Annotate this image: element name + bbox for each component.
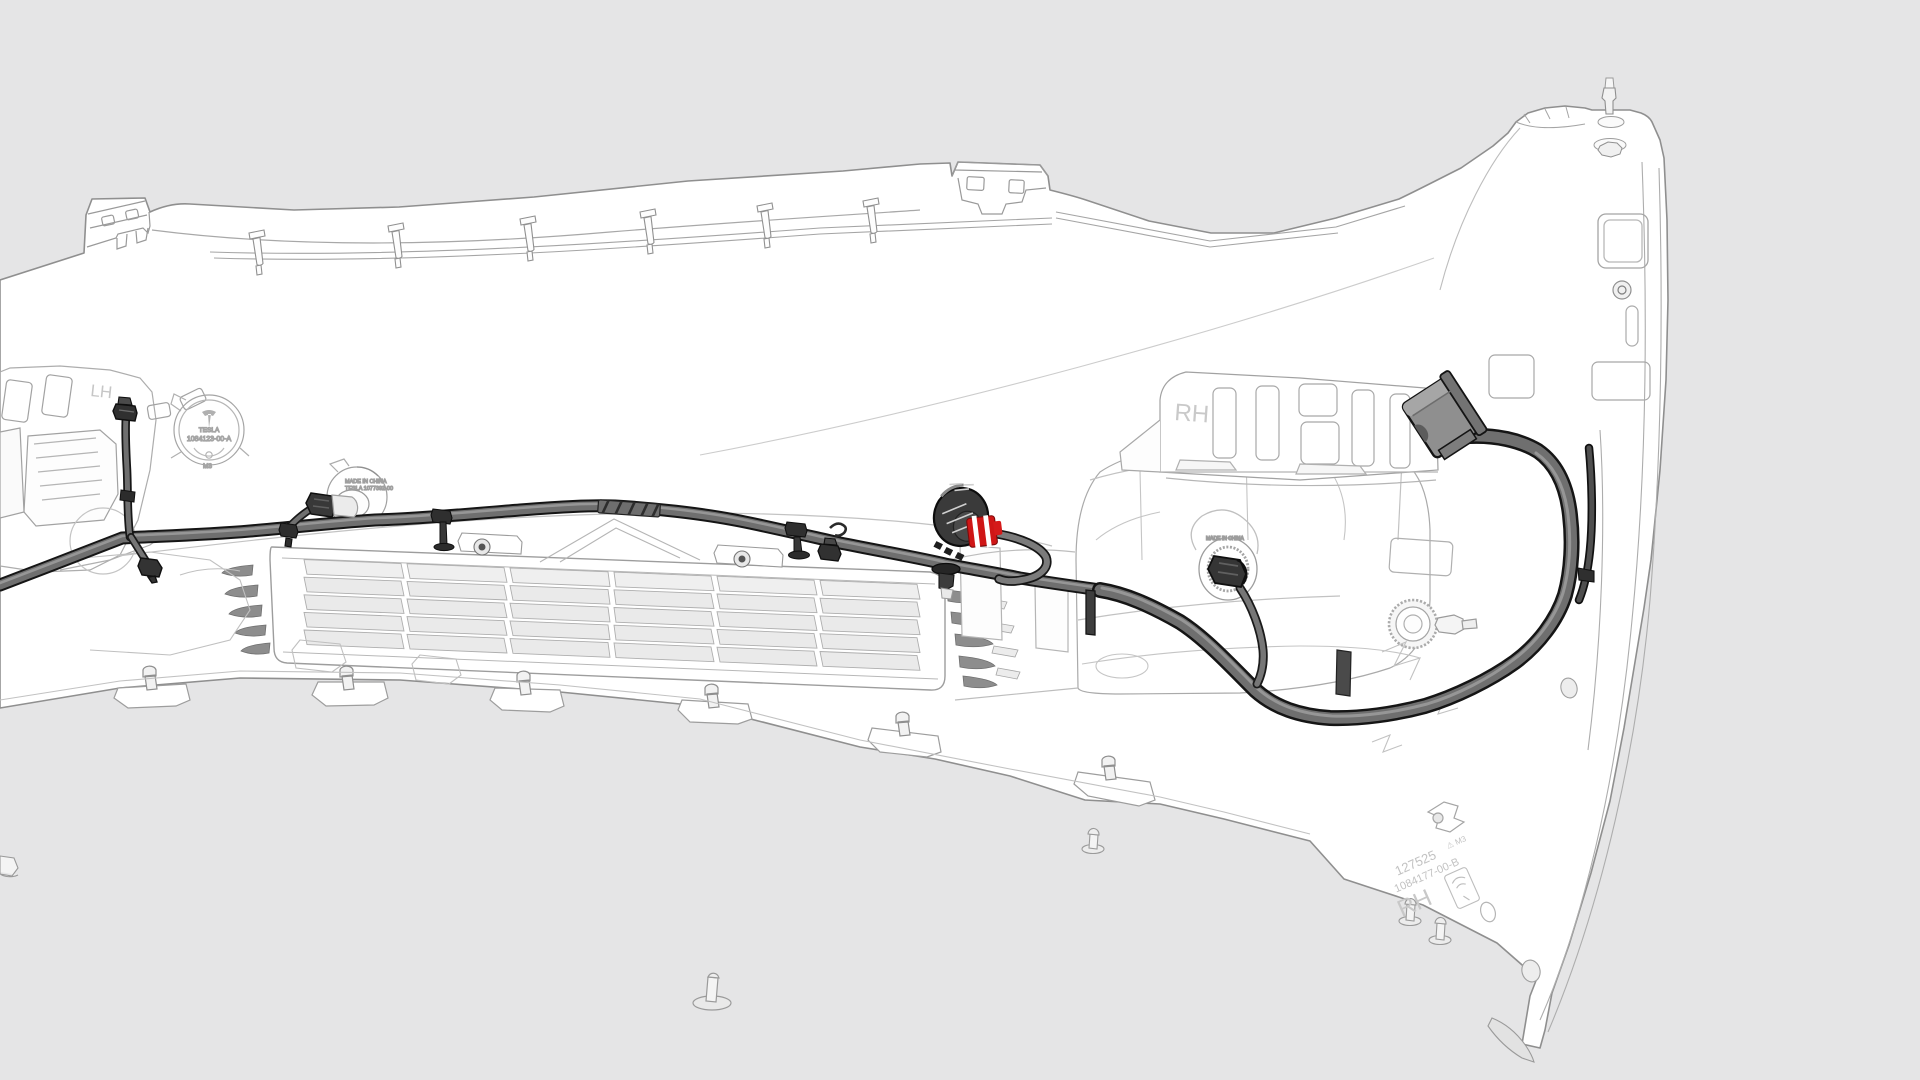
svg-text:RH: RH <box>1174 399 1210 428</box>
svg-text:LH: LH <box>90 381 114 402</box>
svg-text:TESLA: TESLA <box>199 427 220 434</box>
svg-text:M3: M3 <box>203 463 212 470</box>
svg-text:MADE IN CHINA: MADE IN CHINA <box>1206 536 1244 542</box>
svg-text:MADE IN CHINA: MADE IN CHINA <box>345 479 387 485</box>
svg-text:1084123-00-A: 1084123-00-A <box>187 436 232 443</box>
